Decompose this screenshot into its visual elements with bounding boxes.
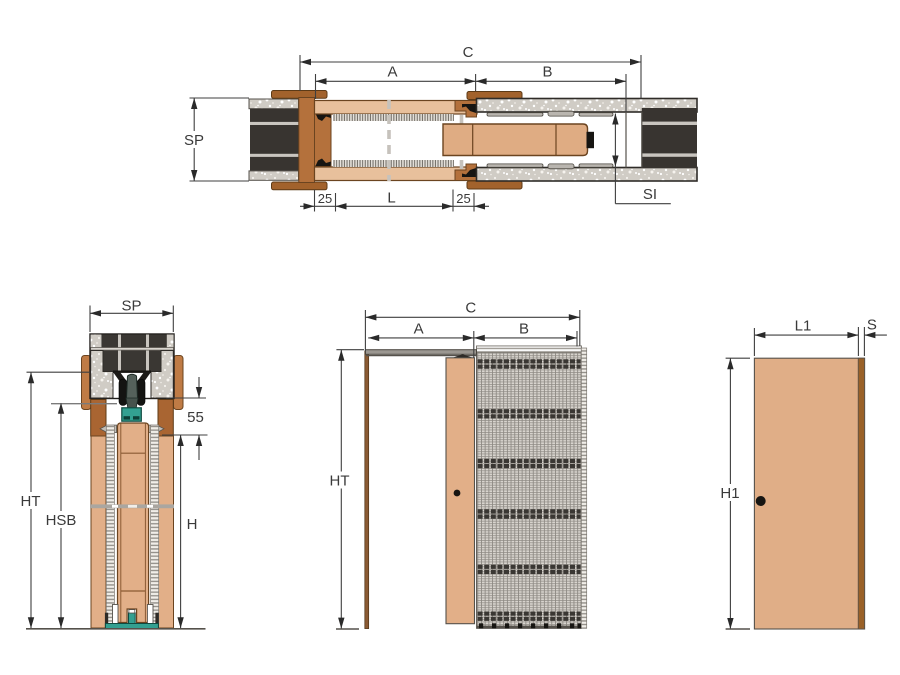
svg-text:SP: SP bbox=[184, 132, 204, 149]
svg-text:L1: L1 bbox=[795, 318, 812, 335]
svg-text:HSB: HSB bbox=[46, 512, 77, 529]
svg-text:A: A bbox=[387, 64, 397, 81]
svg-text:B: B bbox=[542, 64, 552, 81]
svg-text:S: S bbox=[867, 317, 877, 334]
svg-text:25: 25 bbox=[456, 191, 470, 206]
svg-text:L: L bbox=[387, 190, 395, 207]
svg-text:SP: SP bbox=[121, 298, 141, 315]
svg-text:C: C bbox=[465, 300, 476, 317]
svg-text:HT: HT bbox=[330, 473, 350, 490]
svg-text:25: 25 bbox=[318, 191, 332, 206]
svg-text:B: B bbox=[519, 321, 529, 338]
svg-text:SI: SI bbox=[643, 186, 657, 203]
svg-text:H: H bbox=[187, 516, 198, 533]
svg-text:H1: H1 bbox=[720, 485, 739, 502]
svg-text:HT: HT bbox=[21, 493, 41, 510]
svg-text:A: A bbox=[414, 321, 424, 338]
svg-text:55: 55 bbox=[187, 409, 204, 426]
svg-text:C: C bbox=[463, 44, 474, 61]
